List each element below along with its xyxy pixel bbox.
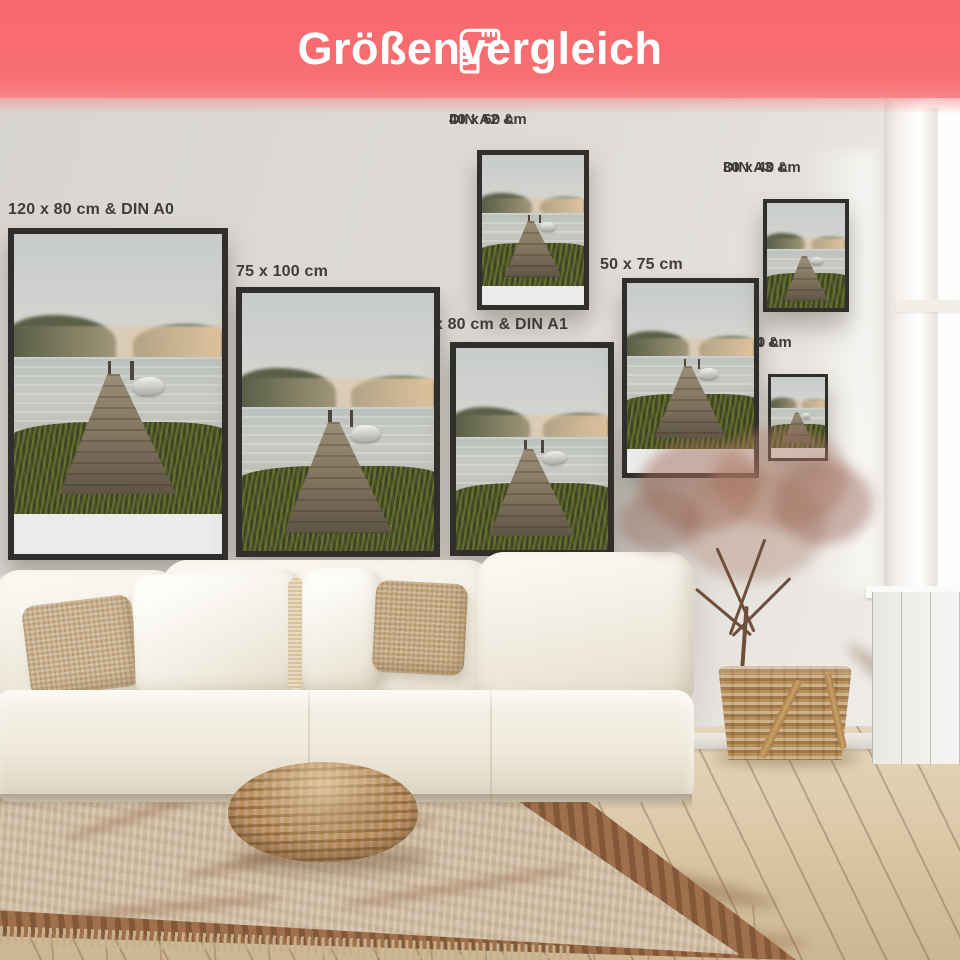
white-pillow <box>132 569 306 699</box>
poster-art <box>627 283 754 449</box>
poster-art <box>482 155 584 286</box>
window-sash <box>896 300 960 312</box>
poster-frame-din-a1 <box>450 342 614 556</box>
poster-art-boat <box>540 222 556 231</box>
beige-pillow <box>21 594 141 699</box>
white-pillow <box>302 568 382 694</box>
poster-frame-din-a3 <box>763 199 849 312</box>
size-label-text: 50 x 75 cm <box>600 254 683 276</box>
size-comparison-image: 120 x 80 cm & DIN A0 75 x 100 cm DIN A2 … <box>0 0 960 960</box>
poster-art <box>242 293 434 551</box>
poster-art-boat <box>811 256 823 263</box>
poster-frame-din-a2 <box>477 150 589 310</box>
poster-art-post <box>539 215 541 224</box>
beige-pillow <box>372 580 469 677</box>
poster-frame-75x100 <box>236 287 440 557</box>
header-banner: Größenvergleich <box>0 0 960 98</box>
poster-art <box>456 348 608 550</box>
poster-art-post <box>130 361 134 379</box>
poster-art-post <box>350 410 353 427</box>
window-mullion <box>922 108 937 588</box>
poster-art-post <box>698 359 700 370</box>
wicker-pouf <box>228 762 418 862</box>
poster-frame-din-a0 <box>8 228 228 560</box>
sideboard <box>872 592 960 764</box>
poster-art <box>767 203 845 308</box>
poster-art-post <box>541 440 544 453</box>
size-label-text: 30 x 40 cm <box>723 158 801 178</box>
size-label-text: 120 x 80 cm & DIN A0 <box>8 199 174 221</box>
poster-paper-margin <box>482 286 584 305</box>
poster-paper-margin <box>14 514 222 554</box>
page-title: Größenvergleich <box>297 23 662 75</box>
banner-fade <box>0 98 960 114</box>
size-label-text: 75 x 100 cm <box>236 261 328 283</box>
poster-art-boat <box>351 424 381 442</box>
poster-art-boat <box>802 413 810 418</box>
poster-art <box>14 234 222 514</box>
